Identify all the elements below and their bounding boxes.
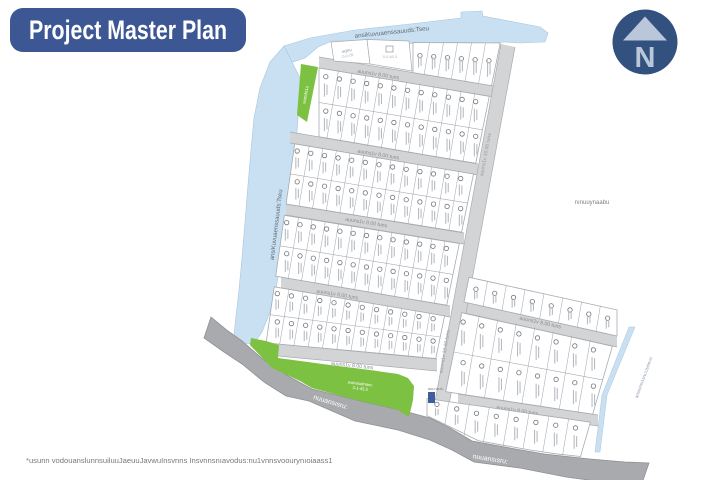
svg-text:N: N <box>635 42 656 74</box>
svg-text:0-0-60.3: 0-0-60.3 <box>383 55 397 59</box>
svg-text:Project Master Plan: Project Master Plan <box>29 15 227 45</box>
svg-text:nınuuynaabu: nınuuynaabu <box>575 200 610 206</box>
svg-text:onu wu1.: onu wu1. <box>428 386 444 391</box>
svg-text:*usunn vodouanslunnsuiluuJaeuu: *usunn vodouanslunnsuiluuJaeuuJavwuInsvn… <box>26 456 333 465</box>
svg-text:ansnıms1sru:Uselevu: ansnıms1sru:Uselevu <box>634 356 654 399</box>
